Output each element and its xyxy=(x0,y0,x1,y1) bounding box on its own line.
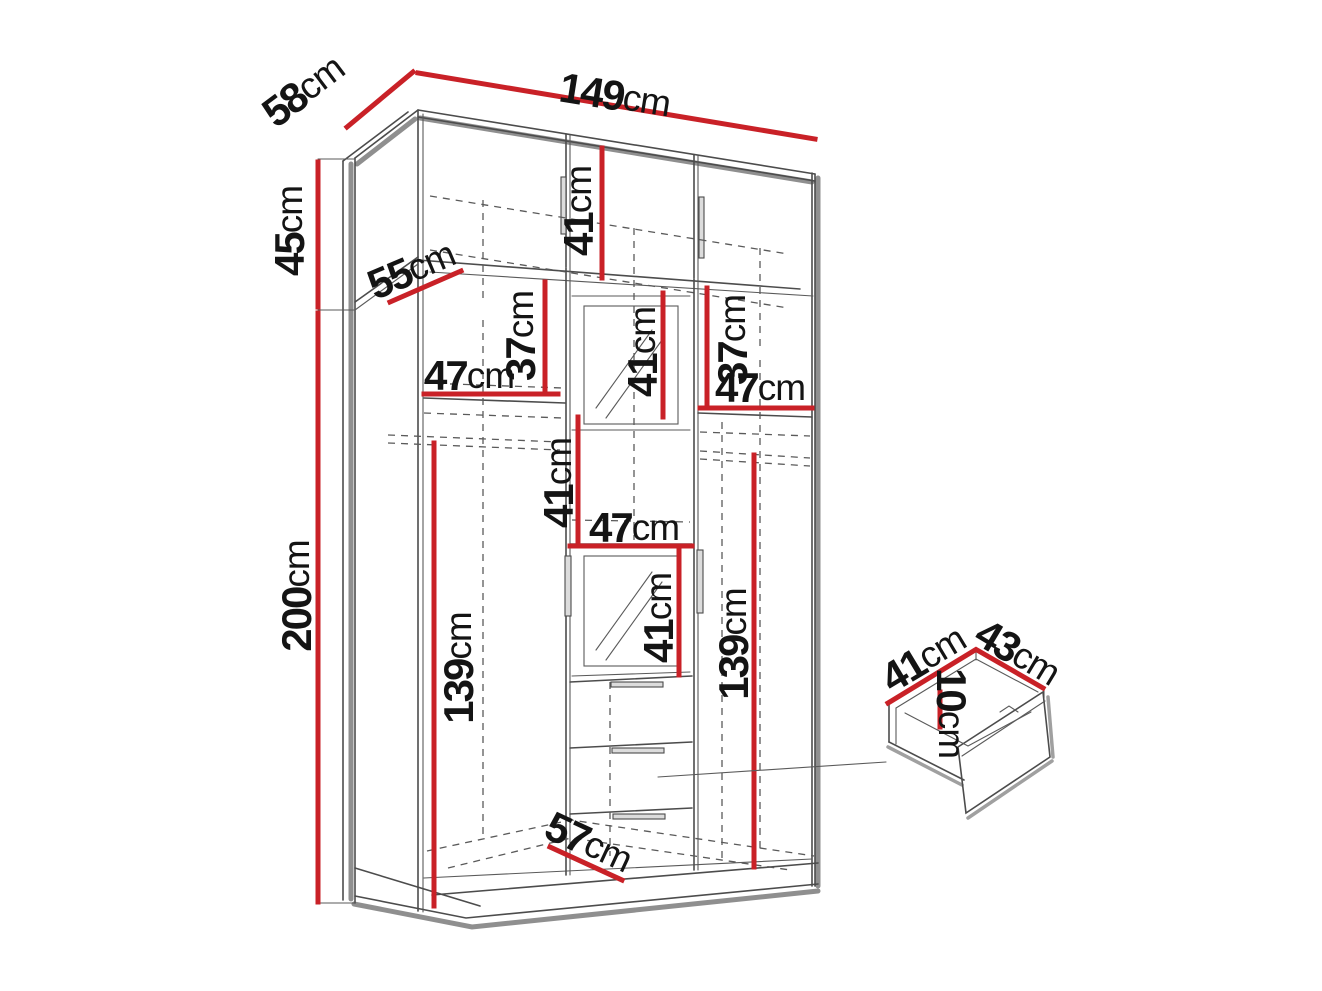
drawer3-handle xyxy=(613,814,665,819)
dimension-annotations: 58cm 149cm 45cm 200cm 55cm 41cm 37cm 47 xyxy=(253,44,815,906)
dim-label-mirror-sect-height: 41cm xyxy=(635,573,682,663)
right-shelf-dashed xyxy=(700,432,810,436)
dim-label-top-shelf-depth: 55cm xyxy=(360,230,461,308)
dim-label-depth: 58cm xyxy=(253,44,353,136)
left-shelf xyxy=(424,398,565,403)
top-left-edge-shadow xyxy=(357,119,415,164)
dim-label-right-shelf-width: 47cm xyxy=(715,364,805,411)
drawer-shadow-front xyxy=(968,761,1052,818)
dim-label-mid-shelf-width: 47cm xyxy=(589,504,679,551)
dim-top-inner-height: 41cm xyxy=(555,148,603,278)
wardrobe-dimension-diagram: 58cm 149cm 45cm 200cm 55cm 41cm 37cm 47 xyxy=(0,0,1322,991)
dim-label-top-inner-height: 41cm xyxy=(555,166,602,256)
drawer3-top xyxy=(570,808,692,814)
main-door-handle-left xyxy=(565,556,571,616)
dim-main-height: 200cm xyxy=(273,313,320,902)
dim-label-width: 149cm xyxy=(556,63,673,127)
dim-label-top-height: 45cm xyxy=(266,186,313,276)
dim-label-right-hang-height: 139cm xyxy=(710,588,757,699)
dim-drawer-width: 43cm xyxy=(967,609,1068,696)
left-shelf-dashed-b xyxy=(424,413,563,418)
top-left-edge xyxy=(355,110,418,158)
dim-mid-shelf-width: 47cm xyxy=(570,504,692,551)
right-shelf xyxy=(698,413,812,417)
dim-left-hang-height: 139cm xyxy=(434,443,482,906)
dim-right-shelf-width: 47cm xyxy=(700,364,812,411)
dim-label-left-hang-height: 139cm xyxy=(435,612,482,723)
dim-mid-upper-height: 41cm xyxy=(619,293,666,417)
dim-label-drawer-height: 10cm xyxy=(929,668,976,758)
drawer2-handle xyxy=(612,748,664,753)
top-cabinet-back-top-dashed xyxy=(430,196,788,254)
left-rail-dashed-a xyxy=(388,435,560,442)
drawer1-top xyxy=(570,676,692,682)
top-door-handle-right xyxy=(699,197,704,258)
dim-label-mid-hang-height: 41cm xyxy=(535,438,582,528)
drawer2-top xyxy=(570,742,692,748)
drawer-leader-line xyxy=(658,762,886,777)
dim-label-drawer-width: 43cm xyxy=(967,609,1068,696)
dim-mid-hang-height: 41cm xyxy=(535,417,582,546)
dim-top-height: 45cm xyxy=(266,162,319,307)
dim-label-mid-upper-height: 41cm xyxy=(619,307,666,397)
dim-label-left-shelf-width: 47cm xyxy=(424,352,514,399)
dim-right-hang-height: 139cm xyxy=(710,455,757,867)
drawer1-handle xyxy=(611,682,663,687)
mid-door-bottom xyxy=(572,672,690,676)
dim-drawer-height: 10cm xyxy=(929,668,976,758)
diagram-svg: 58cm 149cm 45cm 200cm 55cm 41cm 37cm 47 xyxy=(0,0,1322,991)
main-door-handle-right xyxy=(697,550,703,613)
dim-mirror-sect-height: 41cm xyxy=(635,550,682,675)
dim-line-depth xyxy=(347,72,413,127)
dim-label-main-height: 200cm xyxy=(273,540,320,651)
top-front-edge xyxy=(418,110,815,174)
dim-depth: 58cm xyxy=(253,44,413,136)
dim-top-shelf-depth: 55cm xyxy=(360,230,461,308)
left-rail-dashed-b xyxy=(388,443,560,450)
